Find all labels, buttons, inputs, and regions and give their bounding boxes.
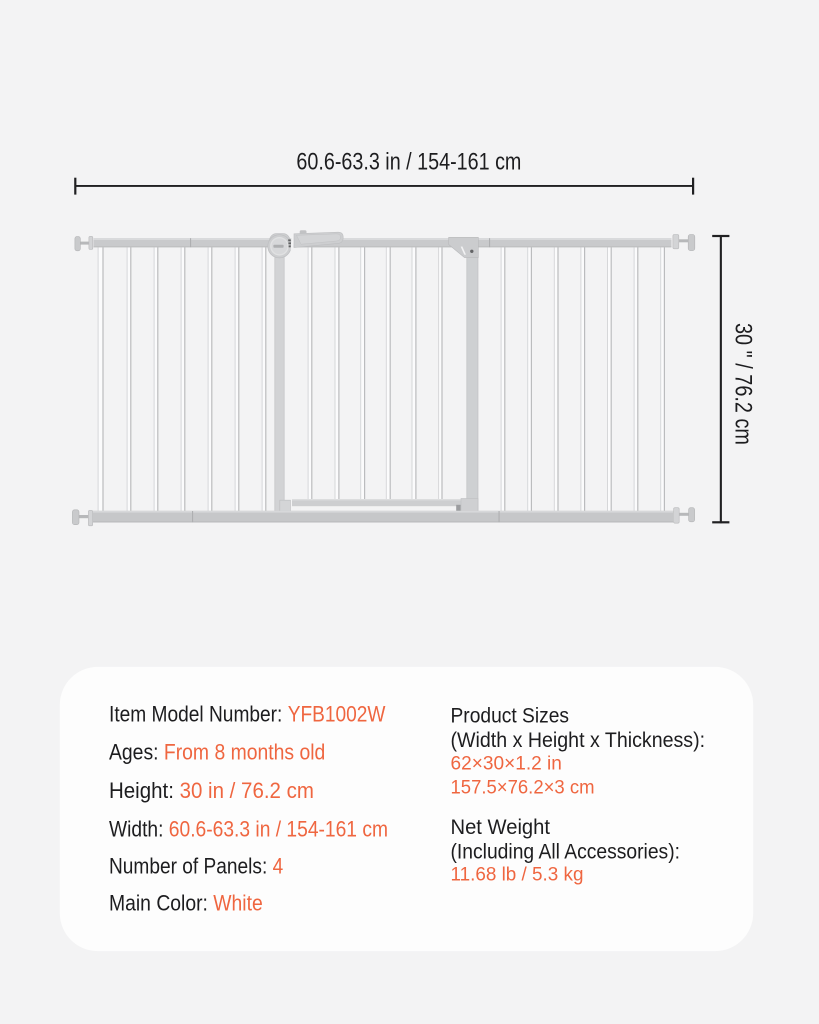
svg-text:(Width x Height x Thickness):: (Width x Height x Thickness):	[451, 729, 706, 752]
svg-text:Main Color:: Main Color:	[109, 891, 213, 916]
svg-text:Width:: Width:	[109, 816, 169, 841]
svg-text:Ages:: Ages:	[109, 740, 164, 765]
svg-text:157.5×76.2×3 cm: 157.5×76.2×3 cm	[451, 777, 595, 798]
svg-text:Number of Panels:: Number of Panels:	[109, 854, 273, 879]
svg-text:60.6-63.3 in / 154-161 cm: 60.6-63.3 in / 154-161 cm	[169, 816, 388, 841]
svg-text:60.6-63.3 in / 154-161 cm: 60.6-63.3 in / 154-161 cm	[296, 148, 521, 175]
svg-text:White: White	[213, 891, 262, 916]
svg-text:Net Weight: Net Weight	[451, 816, 551, 839]
svg-text:62×30×1.2 in: 62×30×1.2 in	[451, 753, 562, 774]
svg-text:Product Sizes: Product Sizes	[451, 704, 570, 727]
svg-text:Height:: Height:	[109, 778, 180, 803]
svg-text:30 in / 76.2 cm: 30 in / 76.2 cm	[180, 778, 314, 803]
svg-text:30 " / 76.2 cm: 30 " / 76.2 cm	[730, 323, 757, 445]
svg-text:YFB1002W: YFB1002W	[288, 701, 386, 726]
svg-text:(Including All Accessories):: (Including All Accessories):	[451, 840, 681, 863]
svg-text:4: 4	[273, 854, 284, 879]
svg-text:11.68 lb / 5.3 kg: 11.68 lb / 5.3 kg	[451, 864, 584, 885]
svg-text:From 8 months old: From 8 months old	[164, 740, 325, 765]
svg-text:Item Model Number:: Item Model Number:	[109, 701, 288, 726]
